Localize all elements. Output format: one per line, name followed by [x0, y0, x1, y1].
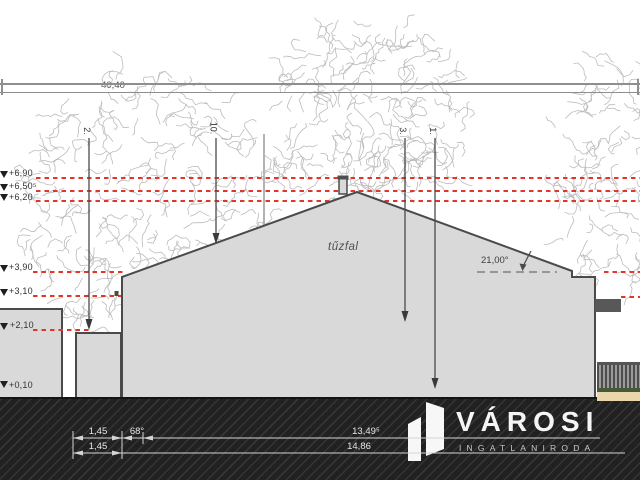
dim-1-45-row2: 1,45: [79, 441, 117, 452]
dim-13-495: 13,49⁵: [340, 426, 392, 437]
architectural-section-drawing: 40,40 VÁR: [0, 0, 640, 480]
bottom-dimension-lines: [0, 0, 640, 480]
dim-1-45-row1: 1,45: [79, 426, 117, 437]
dim-68deg: 68°: [124, 426, 150, 437]
dim-14-86: 14,86: [334, 441, 384, 452]
